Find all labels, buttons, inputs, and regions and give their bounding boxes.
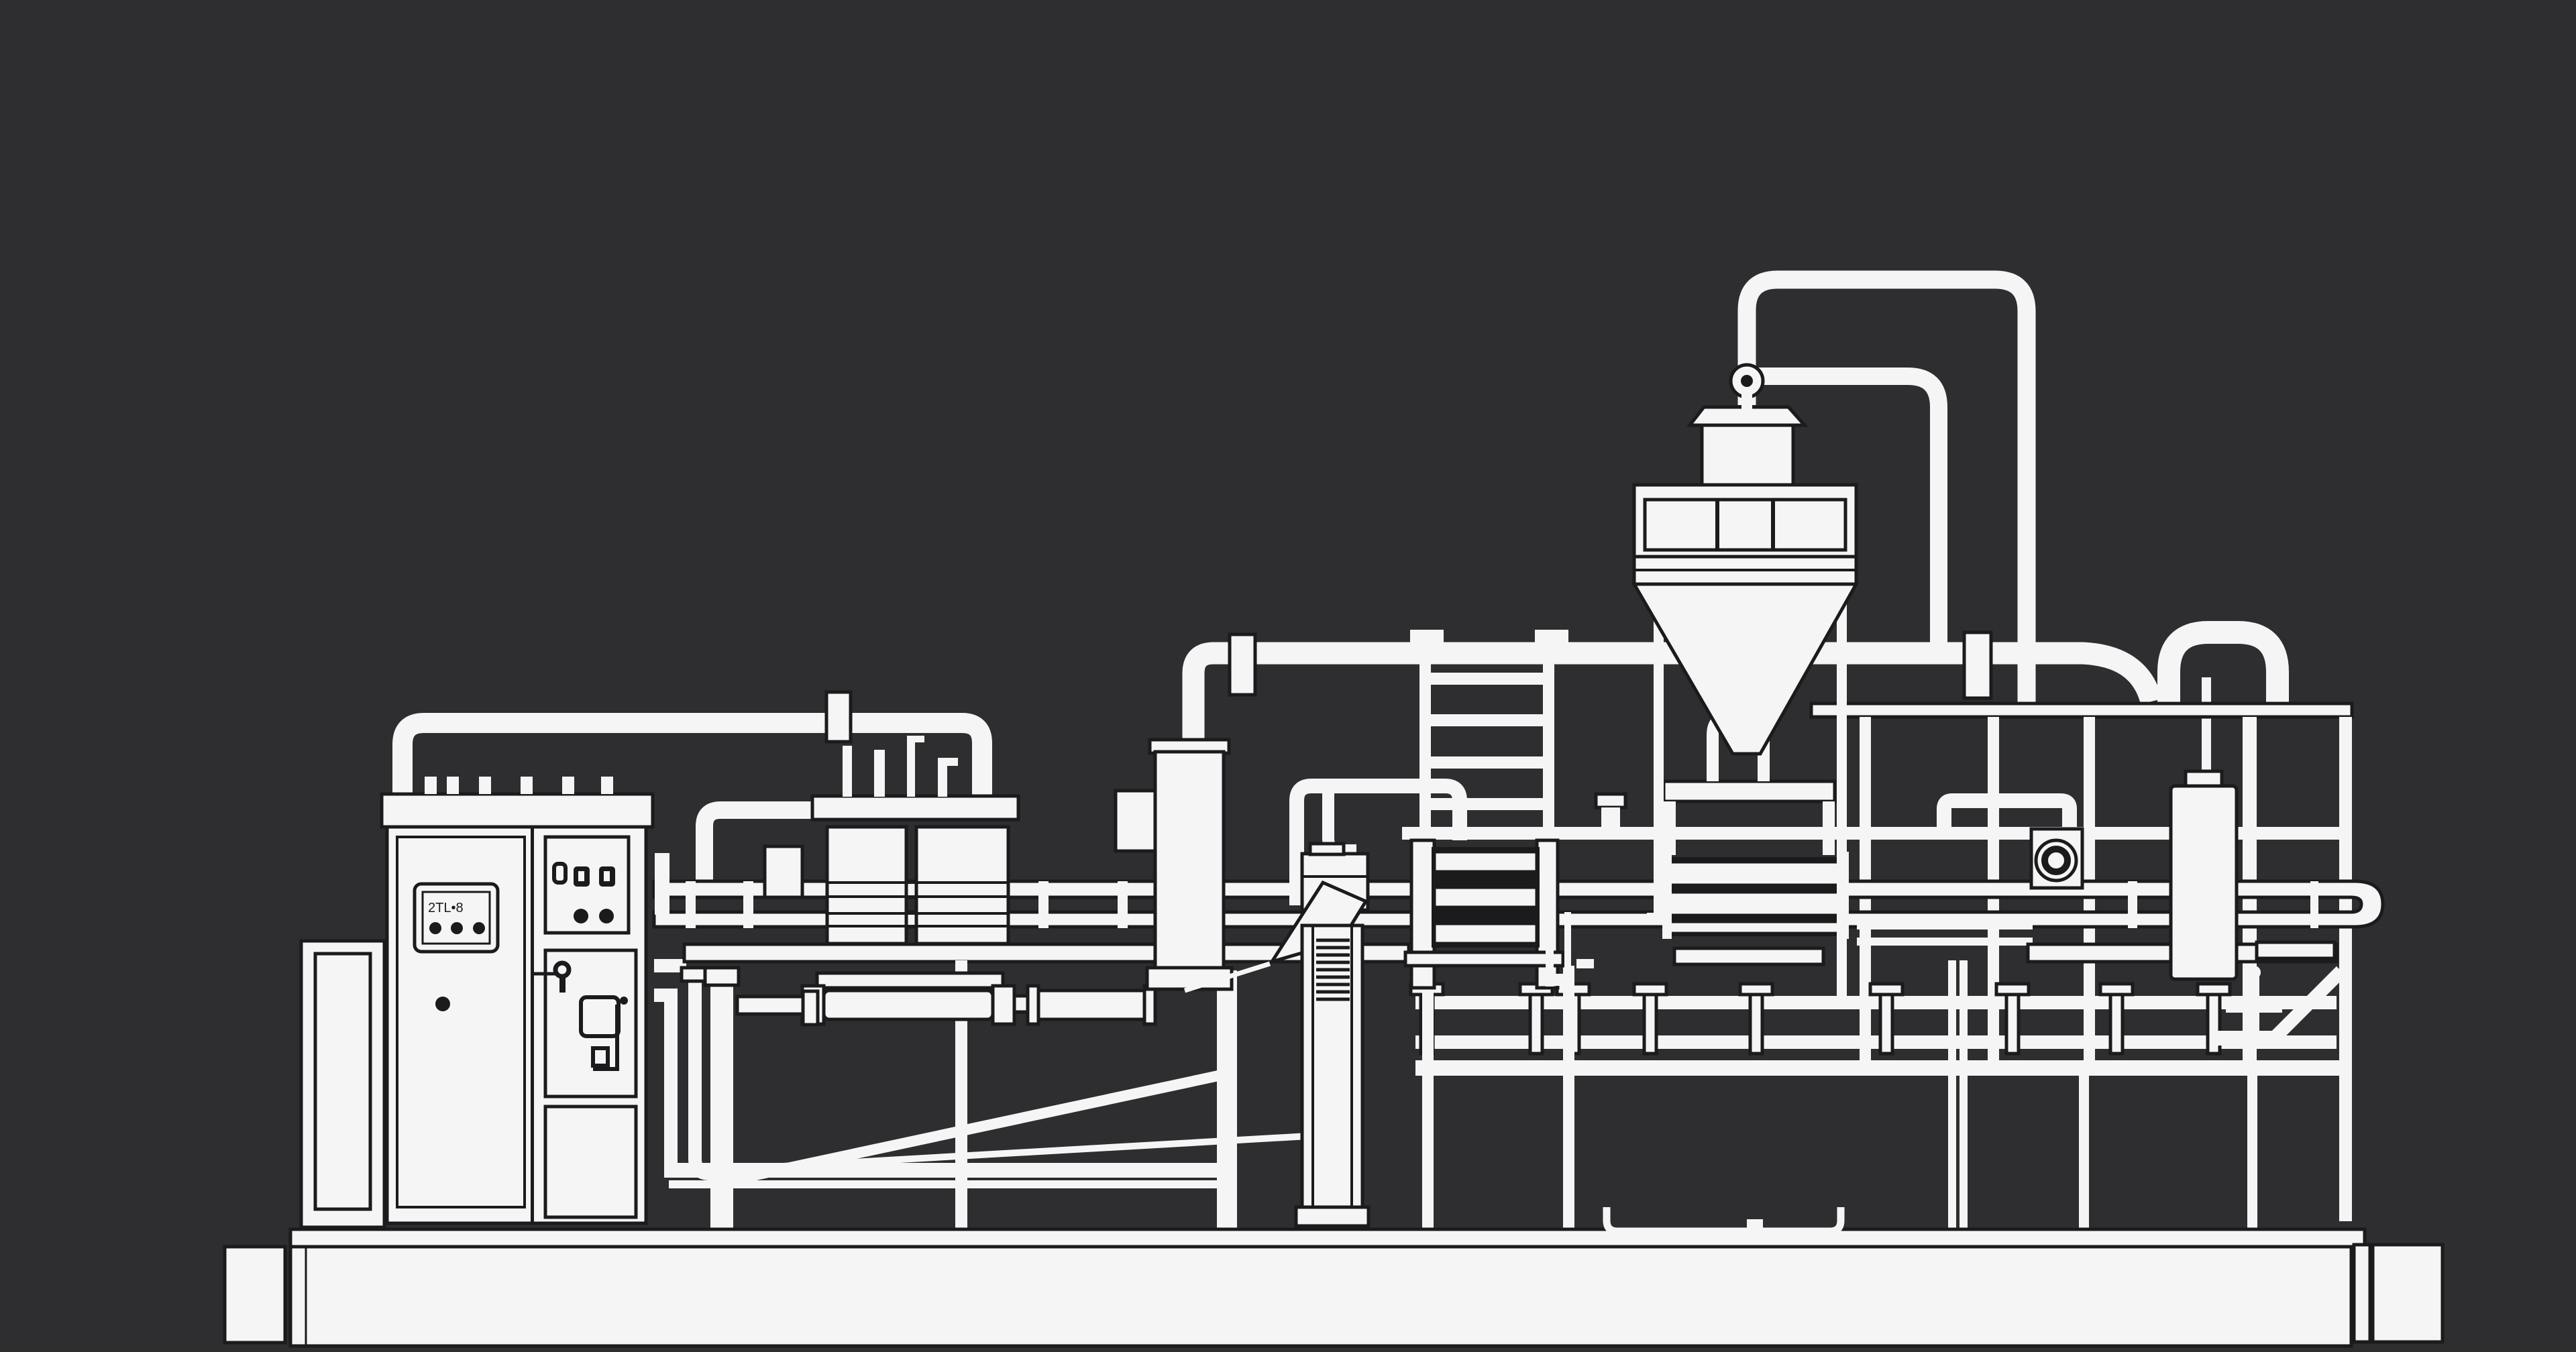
svg-text:2TL•8: 2TL•8 xyxy=(428,901,464,915)
